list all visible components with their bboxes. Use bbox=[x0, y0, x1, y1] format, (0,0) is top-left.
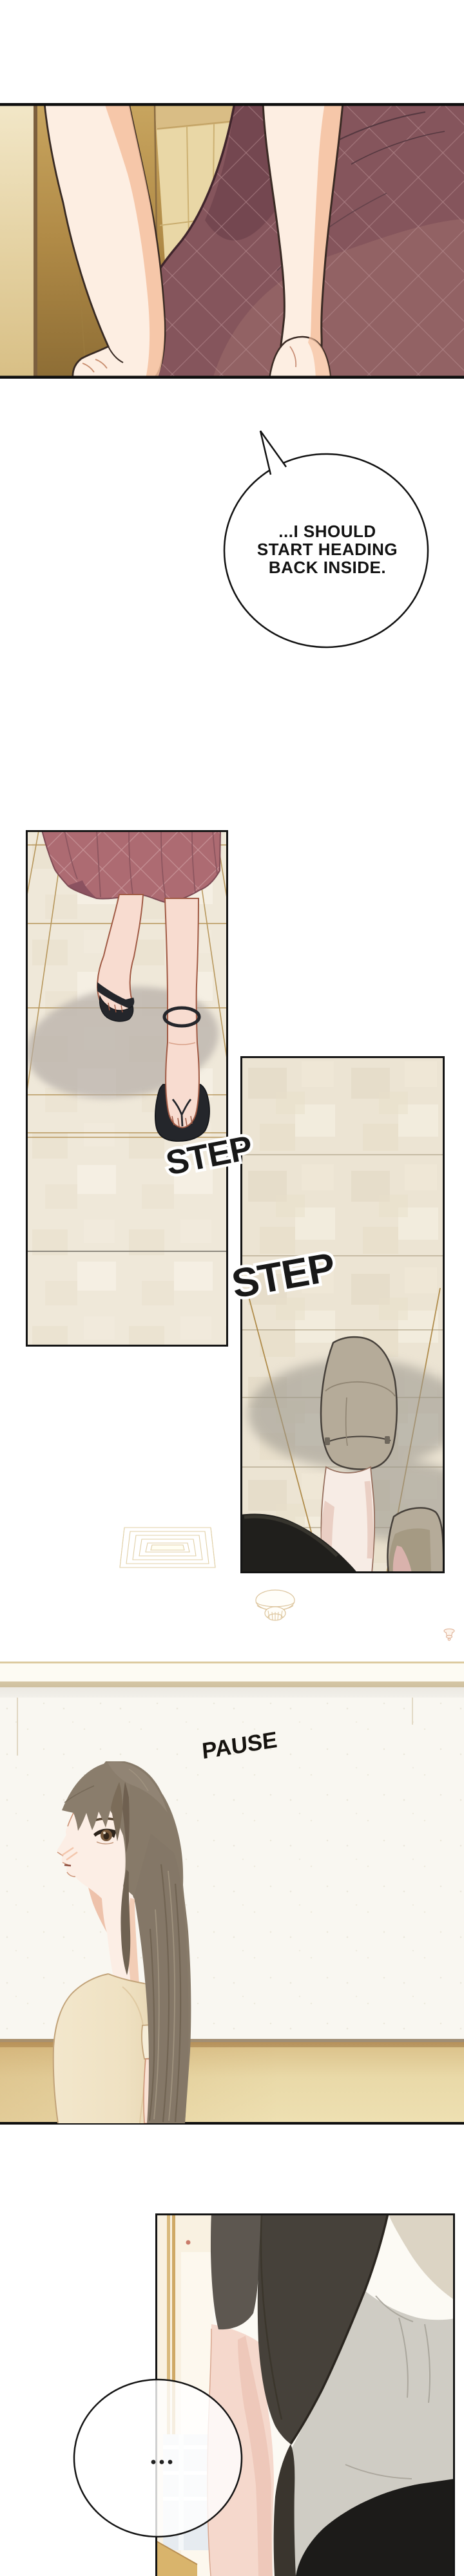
svg-text:STEP: STEP bbox=[163, 1129, 255, 1183]
svg-text:STEP: STEP bbox=[228, 1245, 338, 1307]
svg-text:...I SHOULD: ...I SHOULD bbox=[278, 522, 376, 541]
svg-text:START HEADING: START HEADING bbox=[257, 540, 398, 559]
svg-text:BACK INSIDE.: BACK INSIDE. bbox=[269, 558, 386, 577]
